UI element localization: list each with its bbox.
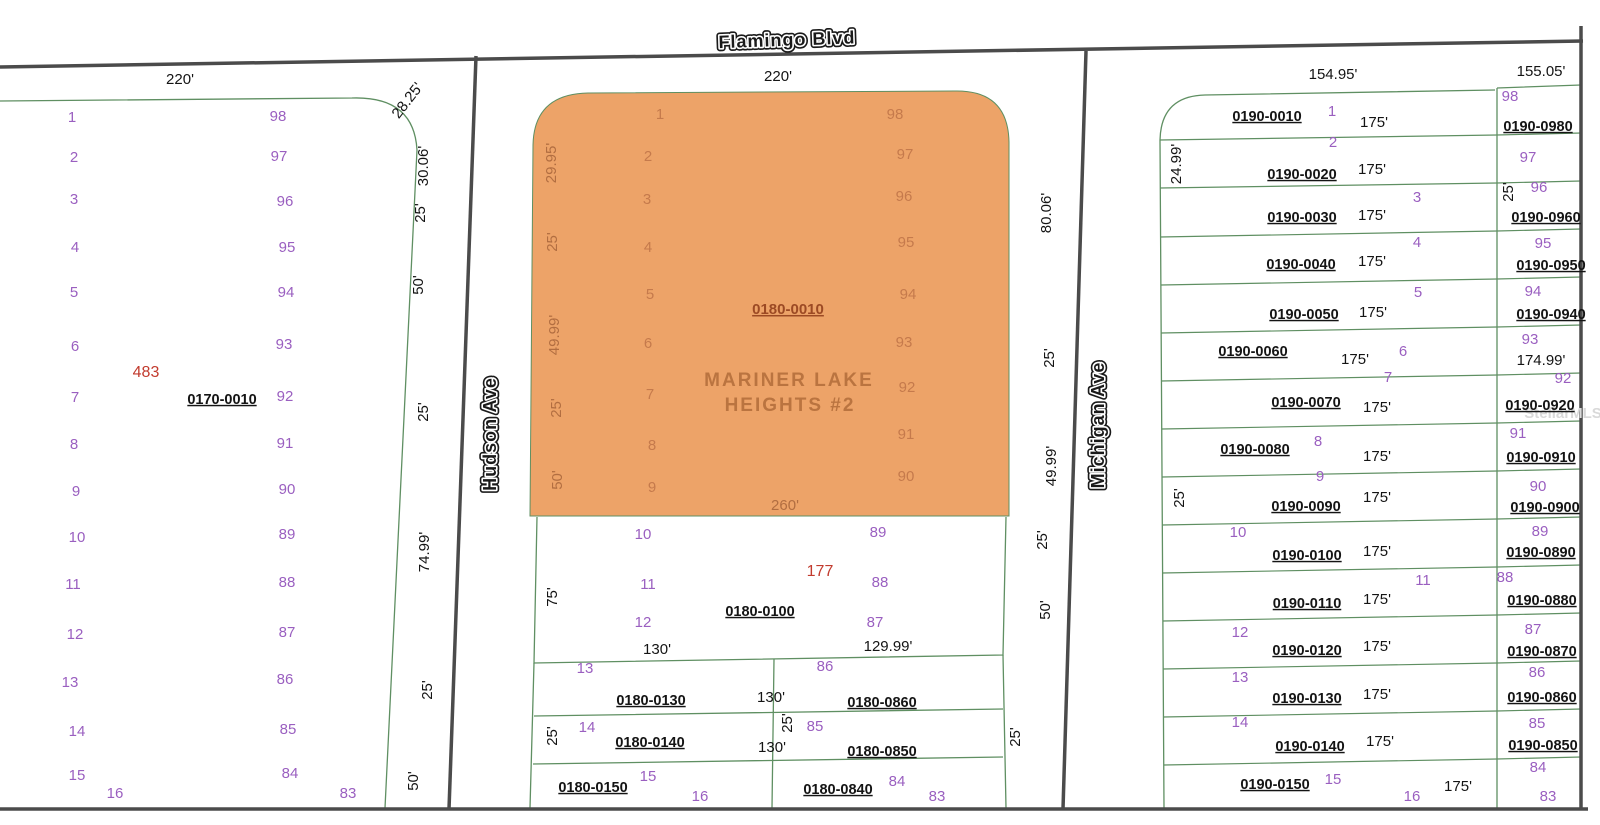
dimension-label-17499: 174.99'	[1517, 352, 1566, 369]
parcel-id-01900140: 0190-0140	[1275, 739, 1344, 755]
lot-number-8: 8	[70, 436, 78, 453]
dimension-label-175: 175'	[1358, 253, 1386, 270]
dimension-label-25: 25'	[419, 680, 436, 700]
lot-number-highlighted-1: 1	[656, 106, 664, 123]
dimension-label-220: 220'	[166, 71, 194, 88]
lot-number-85: 85	[807, 718, 824, 735]
lot-number-1: 1	[1328, 103, 1336, 120]
dimension-label-25: 25'	[1500, 182, 1517, 202]
lot-number-13: 13	[1232, 669, 1249, 686]
lot-number-87: 87	[1525, 621, 1542, 638]
lot-number-96: 96	[277, 193, 294, 210]
lot-number-highlighted-90: 90	[898, 468, 915, 485]
parcel-id-01900950: 0190-0950	[1516, 258, 1585, 274]
lot-number-13: 13	[62, 674, 79, 691]
parcel-id-01900120: 0190-0120	[1272, 643, 1341, 659]
lot-number-97: 97	[1520, 149, 1537, 166]
dimension-label-8006: 80.06'	[1038, 193, 1055, 234]
lot-number-96: 96	[1531, 179, 1548, 196]
dimension-label-175: 175'	[1363, 399, 1391, 416]
lot-number-83: 83	[1540, 788, 1557, 805]
dimension-label-25: 25'	[412, 203, 429, 223]
lot-number-13: 13	[577, 660, 594, 677]
lot-number-12: 12	[67, 626, 84, 643]
lot-number-10: 10	[635, 526, 652, 543]
highlight-number-483: 483	[133, 364, 160, 381]
dimension-label-25: 25'	[1041, 348, 1058, 368]
lot-number-84: 84	[1530, 759, 1547, 776]
lot-number-15: 15	[69, 767, 86, 784]
lot-number-highlighted-97: 97	[897, 146, 914, 163]
lot-number-12: 12	[1232, 624, 1249, 641]
dimension-label-175: 175'	[1363, 686, 1391, 703]
dimension-label-175: 175'	[1358, 161, 1386, 178]
lot-number-85: 85	[280, 721, 297, 738]
lot-number-14: 14	[69, 723, 86, 740]
dimension-label-175: 175'	[1444, 778, 1472, 795]
parcel-id-01800860: 0180-0860	[847, 695, 916, 711]
parcel-id-01900010: 0190-0010	[1232, 109, 1301, 125]
parcel-id-01900890: 0190-0890	[1506, 545, 1575, 561]
dimension-label-25: 25'	[1171, 488, 1188, 508]
lot-number-highlighted-94: 94	[900, 286, 917, 303]
dimension-label-175: 175'	[1358, 207, 1386, 224]
parcel-id-01900940: 0190-0940	[1516, 307, 1585, 323]
parcel-id-01800130: 0180-0130	[616, 693, 685, 709]
parcel-id-01700010: 0170-0010	[187, 392, 256, 408]
lot-number-97: 97	[271, 148, 288, 165]
lot-number-9: 9	[1316, 468, 1324, 485]
lot-number-95: 95	[1535, 235, 1552, 252]
lot-number-16: 16	[692, 788, 709, 805]
lot-number-highlighted-2: 2	[644, 148, 652, 165]
lot-number-14: 14	[1232, 714, 1249, 731]
dimension-label-175: 175'	[1363, 638, 1391, 655]
dimension-label-25: 25'	[1034, 530, 1051, 550]
street-name-text: Michigan Ave	[1088, 362, 1108, 489]
dimension-label-175: 175'	[1363, 543, 1391, 560]
lot-number-91: 91	[277, 435, 294, 452]
lot-number-11: 11	[640, 576, 656, 593]
dimension-label-3006: 30.06'	[415, 146, 432, 187]
dimension-label-50: 50'	[405, 771, 422, 791]
dimension-label-175: 175'	[1341, 351, 1369, 368]
lot-number-highlighted-7: 7	[646, 386, 654, 403]
lot-number-86: 86	[817, 658, 834, 675]
dimension-label-highlighted-25: 25'	[544, 232, 561, 252]
lot-number-6: 6	[1399, 343, 1407, 360]
lot-number-highlighted-95: 95	[898, 234, 915, 251]
dimension-label-15505: 155.05'	[1517, 63, 1566, 80]
street-label-hudson-ave: Hudson AveHudson AveHudson Ave	[480, 377, 500, 491]
lot-number-12: 12	[635, 614, 652, 631]
dimension-label-175: 175'	[1366, 733, 1394, 750]
lot-number-3: 3	[1413, 189, 1421, 206]
lot-number-88: 88	[279, 574, 296, 591]
lot-number-highlighted-91: 91	[898, 426, 915, 443]
lot-number-highlighted-96: 96	[896, 188, 913, 205]
lot-number-90: 90	[279, 481, 296, 498]
dimension-label-25: 25'	[1007, 727, 1024, 747]
parcel-id-01900100: 0190-0100	[1272, 548, 1341, 564]
lot-number-95: 95	[279, 239, 296, 256]
parcel-id-01900020: 0190-0020	[1267, 167, 1336, 183]
dimension-label-highlighted-50: 50'	[549, 470, 566, 490]
lot-number-11: 11	[1415, 572, 1431, 589]
parcel-id-01900080: 0190-0080	[1220, 442, 1289, 458]
highlight-number-177: 177	[807, 563, 834, 580]
parcel-id-01900920: 0190-0920	[1505, 398, 1574, 414]
parcel-id-01900130: 0190-0130	[1272, 691, 1341, 707]
lot-number-highlighted-8: 8	[648, 437, 656, 454]
lot-number-7: 7	[1384, 369, 1392, 386]
dimension-label-220: 220'	[764, 68, 792, 85]
lot-number-highlighted-5: 5	[646, 286, 654, 303]
dimension-label-15495: 154.95'	[1309, 66, 1358, 83]
lot-number-6: 6	[71, 338, 79, 355]
lot-number-7: 7	[71, 389, 79, 406]
lot-number-84: 84	[889, 773, 906, 790]
parcel-id-01900980: 0190-0980	[1503, 119, 1572, 135]
parcel-id-01800840: 0180-0840	[803, 782, 872, 798]
parcel-id-01800850: 0180-0850	[847, 744, 916, 760]
dimension-label-175: 175'	[1363, 489, 1391, 506]
lot-number-highlighted-3: 3	[643, 191, 651, 208]
parcel-id-highlighted-01800010: 0180-0010	[752, 301, 824, 318]
plat-map: StellarMLS220'19829739649559469379289199…	[0, 0, 1600, 825]
lot-number-88: 88	[1497, 569, 1514, 586]
lot-number-4: 4	[71, 239, 79, 256]
lot-number-highlighted-4: 4	[644, 239, 652, 256]
lot-number-10: 10	[1230, 524, 1247, 541]
lot-number-9: 9	[72, 483, 80, 500]
lot-number-91: 91	[1510, 425, 1527, 442]
subdivision-name-line2: HEIGHTS #2	[725, 395, 856, 416]
parcel-id-01900040: 0190-0040	[1266, 257, 1335, 273]
lot-number-highlighted-92: 92	[899, 379, 916, 396]
dimension-label-130: 130'	[643, 641, 671, 658]
lot-number-2: 2	[1329, 134, 1337, 151]
street-name-text: Hudson Ave	[480, 377, 500, 491]
parcel-id-01900090: 0190-0090	[1271, 499, 1340, 515]
dimension-label-highlighted-25: 25'	[548, 398, 565, 418]
lot-number-94: 94	[1525, 283, 1542, 300]
parcel-id-01800140: 0180-0140	[615, 735, 684, 751]
lot-number-highlighted-93: 93	[896, 334, 913, 351]
parcel-id-01900860: 0190-0860	[1507, 690, 1576, 706]
lot-number-10: 10	[69, 529, 86, 546]
lot-number-88: 88	[872, 574, 889, 591]
dimension-label-7499: 74.99'	[416, 532, 433, 573]
lot-number-86: 86	[1529, 664, 1546, 681]
dimension-label-25: 25'	[544, 726, 561, 746]
lot-number-98: 98	[270, 108, 287, 125]
parcel-id-01900110: 0190-0110	[1273, 596, 1342, 612]
parcel-id-01900150: 0190-0150	[1240, 777, 1309, 793]
dimension-label-highlighted-260: 260'	[771, 497, 799, 514]
lot-number-89: 89	[870, 524, 887, 541]
lot-number-84: 84	[282, 765, 299, 782]
dimension-label-highlighted-2995: 29.95'	[543, 143, 560, 184]
lot-number-3: 3	[70, 191, 78, 208]
lot-number-15: 15	[1325, 771, 1342, 788]
lot-number-85: 85	[1529, 715, 1546, 732]
lot-number-4: 4	[1413, 234, 1421, 251]
lot-number-16: 16	[107, 785, 124, 802]
lot-number-highlighted-6: 6	[644, 335, 652, 352]
dimension-label-75: 75'	[544, 587, 561, 607]
lot-number-15: 15	[640, 768, 657, 785]
dimension-label-175: 175'	[1363, 591, 1391, 608]
parcel-id-01900870: 0190-0870	[1507, 644, 1576, 660]
lot-number-87: 87	[867, 614, 884, 631]
dimension-label-130: 130'	[758, 739, 786, 756]
lot-number-8: 8	[1314, 433, 1322, 450]
lot-number-11: 11	[65, 576, 81, 593]
dimension-label-25: 25'	[779, 713, 796, 733]
dimension-label-highlighted-4999: 49.99'	[546, 315, 563, 356]
lot-number-98: 98	[1502, 88, 1519, 105]
parcel-id-01900910: 0190-0910	[1506, 450, 1575, 466]
parcel-id-01800150: 0180-0150	[558, 780, 627, 796]
lot-number-1: 1	[68, 109, 76, 126]
lot-number-86: 86	[277, 671, 294, 688]
dimension-label-175: 175'	[1360, 114, 1388, 131]
plat-map-canvas: StellarMLS220'19829739649559469379289199…	[0, 0, 1600, 825]
lot-number-83: 83	[929, 788, 946, 805]
parcel-id-01900880: 0190-0880	[1507, 593, 1576, 609]
parcel-id-01900850: 0190-0850	[1508, 738, 1577, 754]
street-label-michigan-ave: Michigan AveMichigan AveMichigan Ave	[1088, 362, 1108, 489]
parcel-id-01900900: 0190-0900	[1510, 500, 1579, 516]
lot-number-93: 93	[1522, 331, 1539, 348]
parcel-id-01900960: 0190-0960	[1511, 210, 1580, 226]
lot-number-90: 90	[1530, 478, 1547, 495]
parcel-id-01900070: 0190-0070	[1271, 395, 1340, 411]
lot-number-5: 5	[1414, 284, 1422, 301]
lot-number-16: 16	[1404, 788, 1421, 805]
subdivision-name-line1: MARINER LAKE	[704, 370, 874, 391]
lot-number-87: 87	[279, 624, 296, 641]
dimension-label-130: 130'	[757, 689, 785, 706]
lot-number-highlighted-98: 98	[887, 106, 904, 123]
parcel-id-01800100: 0180-0100	[725, 604, 794, 620]
lot-number-14: 14	[579, 719, 596, 736]
parcel-id-01900060: 0190-0060	[1218, 344, 1287, 360]
lot-number-89: 89	[279, 526, 296, 543]
dimension-label-12999: 129.99'	[864, 638, 913, 655]
dimension-label-175: 175'	[1359, 304, 1387, 321]
lot-number-83: 83	[340, 785, 357, 802]
dimension-label-2499: 24.99'	[1168, 144, 1185, 185]
dimension-label-175: 175'	[1363, 448, 1391, 465]
parcel-id-01900030: 0190-0030	[1267, 210, 1336, 226]
lot-number-2: 2	[70, 149, 78, 166]
lot-number-92: 92	[277, 388, 294, 405]
lot-number-highlighted-9: 9	[648, 479, 656, 496]
lot-number-92: 92	[1555, 370, 1572, 387]
lot-number-94: 94	[278, 284, 295, 301]
lot-number-89: 89	[1532, 523, 1549, 540]
lot-number-93: 93	[276, 336, 293, 353]
dimension-label-4999: 49.99'	[1043, 446, 1060, 487]
dimension-label-50: 50'	[1037, 600, 1054, 620]
dimension-label-50: 50'	[410, 275, 427, 295]
dimension-label-25: 25'	[415, 402, 432, 422]
parcel-id-01900050: 0190-0050	[1269, 307, 1338, 323]
lot-number-5: 5	[70, 284, 78, 301]
